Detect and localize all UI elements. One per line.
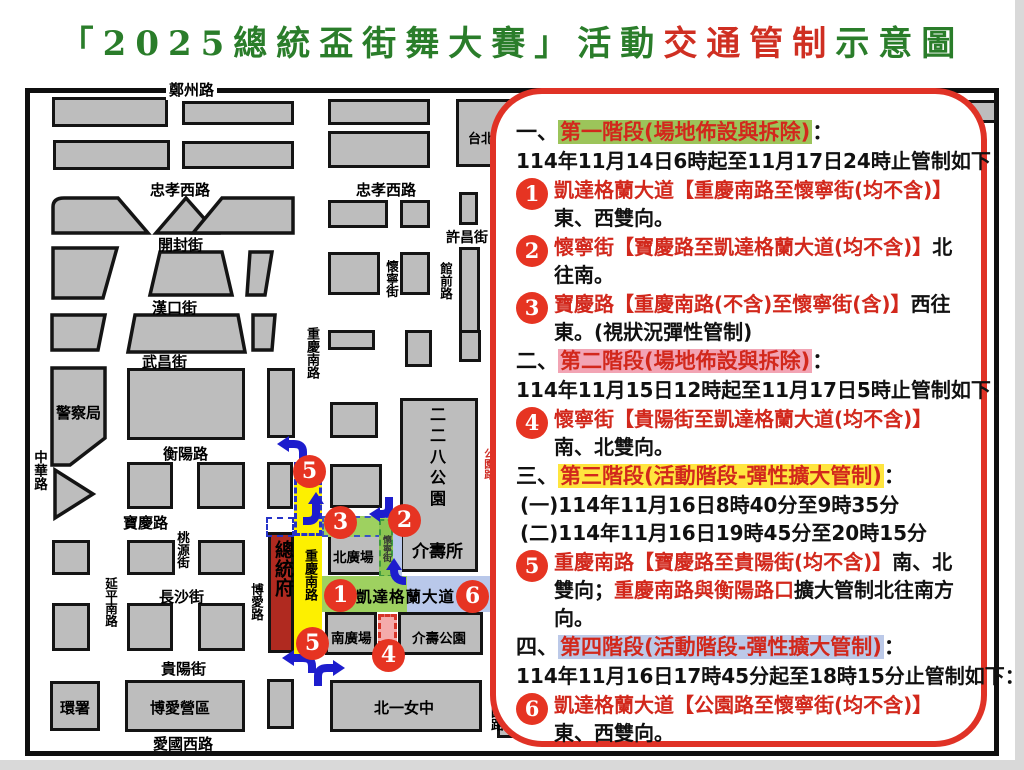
control-item-3: 3 寶慶路【重慶南路(不含)至懷寧街(含)】西往東。(視狀況彈性管制): [516, 290, 957, 346]
section-4-title: 第四階段(活動階段-彈性擴大管制): [558, 635, 884, 659]
item-5-road-2: 重慶南路與衡陽路口: [614, 578, 794, 602]
section-1-prefix: 一、: [516, 120, 558, 144]
item-4-road: 懷寧街【貴陽街至凱達格蘭大道(均不含)】: [554, 407, 932, 431]
item-badge-2: 2: [516, 235, 548, 267]
section-2-date: 114年11月15日12時起至11月17日5時止管制如下：: [516, 376, 957, 404]
section-4-prefix: 四、: [516, 635, 558, 659]
item-1-road: 凱達格蘭大道【重慶南路至懷寧街(均不含)】: [554, 178, 952, 202]
street-label-zhengzhou: 鄭州路: [166, 79, 217, 100]
map-badge-5-upper: 5: [293, 455, 326, 488]
section-3-title: 第三階段(活動階段-彈性擴大管制): [558, 464, 884, 488]
map-badge-1: 1: [324, 579, 357, 612]
turn-arrow-head-icon: [333, 660, 345, 676]
section-2-header: 二、第二階段(場地佈設與拆除)：: [516, 347, 957, 376]
map-badge-5-lower: 5: [296, 627, 329, 660]
item-2-road: 懷寧街【寶慶路至凱達格蘭大道(均不含)】: [554, 235, 932, 259]
item-badge-4: 4: [516, 407, 548, 439]
turn-arrow-head-icon: [277, 436, 289, 452]
map-badge-6: 6: [456, 580, 489, 613]
control-item-1: 1 凱達格蘭大道【重慶南路至懷寧街(均不含)】東、西雙向。: [516, 176, 957, 232]
control-item-6: 6 凱達格蘭大道【公園路至懷寧街(均不含)】東、西雙向。: [516, 691, 957, 747]
item-6-road: 凱達格蘭大道【公園路至懷寧街(均不含)】: [554, 693, 932, 717]
control-item-2: 2 懷寧街【寶慶路至凱達格蘭大道(均不含)】北往南。: [516, 233, 957, 289]
item-badge-3: 3: [516, 292, 548, 324]
section-4-date: 114年11月16日17時45分起至18時15分止管制如下：: [516, 662, 957, 690]
turn-arrow-head-icon: [386, 558, 402, 570]
turn-arrow-head-icon: [282, 650, 294, 666]
turn-arrow-icon: [294, 658, 312, 673]
turn-arrow-icon: [380, 497, 389, 514]
section-4-header: 四、第四階段(活動階段-彈性擴大管制)：: [516, 633, 957, 662]
item-text-2: 懷寧街【寶慶路至凱達格蘭大道(均不含)】北往南。: [554, 233, 954, 289]
section-2-prefix: 二、: [516, 349, 558, 373]
item-text-5: 重慶南路【寶慶路至貴陽街(均不含)】南、北雙向；重慶南路與衡陽路口擴大管制北往南…: [554, 548, 954, 632]
section-1-header: 一、第一階段(場地佈設與拆除)：: [516, 118, 957, 147]
section-2-colon: ：: [812, 349, 833, 373]
item-4-direction: 南、北雙向。: [554, 435, 674, 459]
section-1-title: 第一階段(場地佈設與拆除): [558, 120, 812, 144]
item-text-4: 懷寧街【貴陽街至凱達格蘭大道(均不含)】南、北雙向。: [554, 405, 954, 461]
item-badge-5: 5: [516, 550, 548, 582]
section-3-header: 三、第三階段(活動階段-彈性擴大管制)：: [516, 462, 957, 491]
section-3-date-2: (二)114年11月16日19時45分至20時15分: [516, 519, 957, 547]
item-text-6: 凱達格蘭大道【公園路至懷寧街(均不含)】東、西雙向。: [554, 691, 954, 747]
item-5-road: 重慶南路【寶慶路至貴陽街(均不含)】: [554, 550, 892, 574]
item-text-3: 寶慶路【重慶南路(不含)至懷寧街(含)】西往東。(視狀況彈性管制): [554, 290, 954, 346]
turn-arrow-icon: [303, 504, 316, 521]
turn-arrow-head-icon: [308, 492, 324, 504]
control-item-4: 4 懷寧街【貴陽街至凱達格蘭大道(均不含)】南、北雙向。: [516, 405, 957, 461]
turn-arrow-head-icon: [369, 507, 380, 522]
item-text-1: 凱達格蘭大道【重慶南路至懷寧街(均不含)】東、西雙向。: [554, 176, 954, 232]
section-3-date-1: (一)114年11月16日8時40分至9時35分: [516, 491, 957, 519]
map-badge-4: 4: [372, 639, 405, 672]
section-2-title: 第二階段(場地佈設與拆除): [558, 349, 812, 373]
item-3-road: 寶慶路【重慶南路(不含)至懷寧街(含)】: [554, 292, 911, 316]
item-badge-1: 1: [516, 178, 548, 210]
turn-arrow-icon: [318, 668, 333, 686]
control-item-5: 5 重慶南路【寶慶路至貴陽街(均不含)】南、北雙向；重慶南路與衡陽路口擴大管制北…: [516, 548, 957, 632]
item-1-direction: 東、西雙向。: [554, 206, 674, 230]
map-badge-2: 2: [388, 504, 421, 537]
section-1-colon: ：: [812, 120, 833, 144]
map-badge-3: 3: [324, 506, 357, 539]
turn-arrow-icon: [394, 570, 406, 581]
item-6-direction: 東、西雙向。: [554, 721, 674, 745]
section-4-colon: ：: [884, 635, 905, 659]
section-1-date: 114年11月14日6時起至11月17日24時止管制如下：: [516, 147, 957, 175]
traffic-control-map-page: 「2025總統盃街舞大賽」活動交通管制示意圖: [0, 0, 1024, 770]
section-3-colon: ：: [884, 464, 905, 488]
control-info-panel: 一、第一階段(場地佈設與拆除)： 114年11月14日6時起至11月17日24時…: [490, 88, 987, 747]
item-badge-6: 6: [516, 693, 548, 725]
section-3-prefix: 三、: [516, 464, 558, 488]
